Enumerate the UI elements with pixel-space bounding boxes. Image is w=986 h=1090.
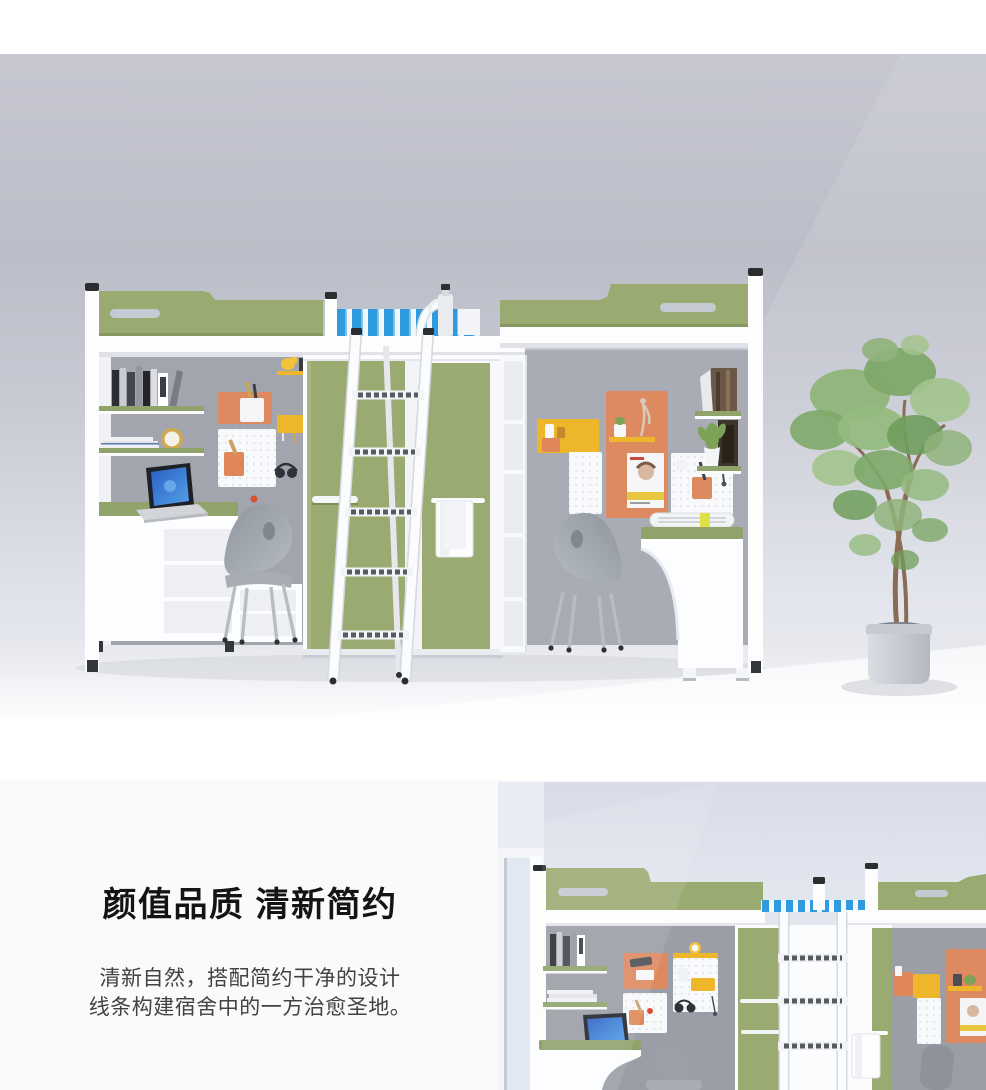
cubby-column xyxy=(500,355,527,652)
wardrobe-front xyxy=(735,925,892,1090)
feature-description-line2: 线条构建宿舍中的一方治愈圣地。 xyxy=(0,993,500,1022)
product-page: 颜值品质 清新简约 清新自然，搭配简约干净的设计 线条构建宿舍中的一方治愈圣地。 xyxy=(0,0,986,1090)
feature-copy: 颜值品质 清新简约 清新自然，搭配简约干净的设计 线条构建宿舍中的一方治愈圣地。 xyxy=(0,782,500,1090)
right-nook-front xyxy=(892,928,986,1090)
plant-pot xyxy=(866,622,932,684)
feature-description-line1: 清新自然，搭配简约干净的设计 xyxy=(0,964,500,993)
shelf-board xyxy=(99,448,204,453)
desk-top xyxy=(641,527,743,539)
magazine xyxy=(627,453,664,508)
feature-description: 清新自然，搭配简约干净的设计 线条构建宿舍中的一方治愈圣地。 xyxy=(0,964,500,1022)
newspaper xyxy=(650,513,734,527)
feature-title: 颜值品质 清新简约 xyxy=(0,886,500,924)
detail-scene xyxy=(498,782,986,1090)
yellow-holder xyxy=(277,415,307,433)
rail-handle-slot xyxy=(110,309,160,318)
hero-scene xyxy=(0,54,986,719)
tool-pocket xyxy=(224,452,244,476)
shelf-board xyxy=(99,406,204,411)
magazine xyxy=(960,998,986,1036)
pillow xyxy=(458,309,480,335)
detail-product-photo xyxy=(498,782,986,1090)
furniture-shadow xyxy=(75,654,765,682)
center-post xyxy=(813,882,825,910)
center-post xyxy=(325,296,337,338)
rail-handle-slot xyxy=(660,303,716,312)
chair-partial xyxy=(919,1043,956,1090)
hero-product-photo xyxy=(0,54,986,719)
